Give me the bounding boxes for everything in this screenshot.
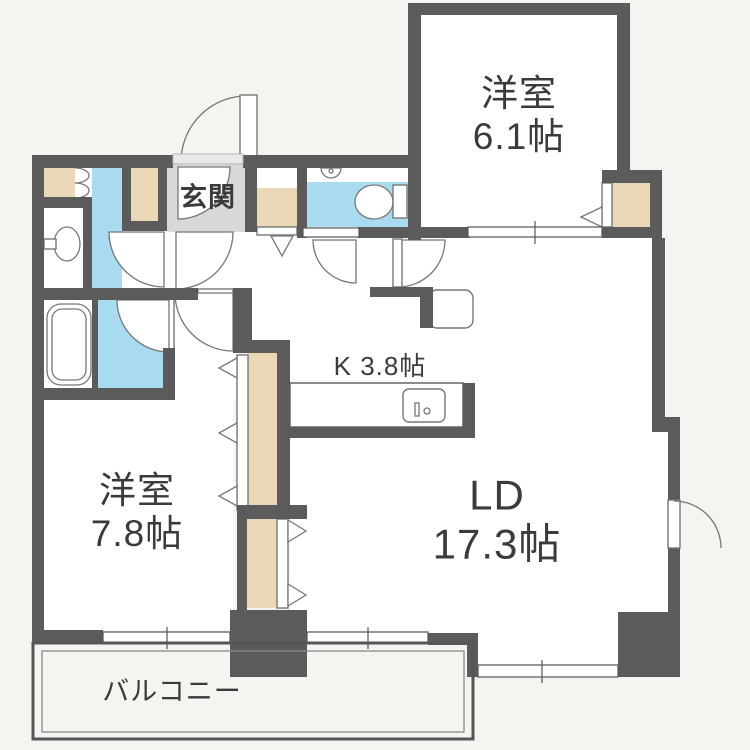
entrance-door-leaf [240, 95, 257, 163]
toilet-tank-icon [393, 185, 407, 218]
room-name: バルコニー [102, 676, 241, 707]
toilet-flush-icon [44, 239, 56, 249]
room-name: 玄関 [180, 182, 236, 213]
room-label-balcony: バルコニー [102, 676, 241, 707]
closet-d-door [237, 355, 248, 510]
room-label-living-dining: LD 17.3帖 [433, 471, 562, 568]
closet-e [247, 517, 277, 608]
closet-bedroom1 [612, 183, 652, 227]
appliance-nook [429, 290, 473, 328]
closet-b [131, 168, 158, 221]
toilet-sliding-door [303, 228, 359, 237]
room-name: 洋室 [473, 73, 565, 116]
kitchen-sink-icon [403, 389, 445, 422]
washroom-corridor-area [92, 168, 122, 288]
side-door-arc [674, 501, 721, 548]
room-label-entrance: 玄関 [180, 182, 236, 213]
toilet-shelf [305, 168, 408, 182]
window-living-right [478, 665, 618, 677]
room-name: K 3.8帖 [334, 351, 427, 381]
hall-ld-door-leaf [393, 239, 402, 287]
room-name: 洋室 [91, 470, 183, 513]
room-label-bedroom1: 洋室 6.1帖 [473, 73, 565, 159]
room-size: 17.3帖 [433, 520, 562, 569]
toilet-icon [355, 185, 393, 219]
floor-plan: 洋室 6.1帖 LD 17.3帖 洋室 7.8帖 K 3.8帖 玄関 バルコニー [0, 0, 750, 750]
closet-e-door [277, 519, 288, 608]
toilet-icon [54, 227, 80, 261]
room-label-kitchen: K 3.8帖 [334, 351, 427, 381]
room-size: 7.8帖 [91, 513, 183, 556]
closet-c [257, 188, 297, 227]
closet-a [44, 168, 75, 198]
closet-d [247, 353, 277, 510]
room-size: 6.1帖 [473, 116, 565, 159]
room-name: LD [433, 471, 562, 520]
entrance-threshold [173, 154, 243, 164]
closet-bedroom1-door [602, 183, 612, 227]
room-label-bedroom2: 洋室 7.8帖 [91, 470, 183, 556]
closet-c-door [257, 227, 297, 235]
side-door-leaf [668, 500, 680, 548]
